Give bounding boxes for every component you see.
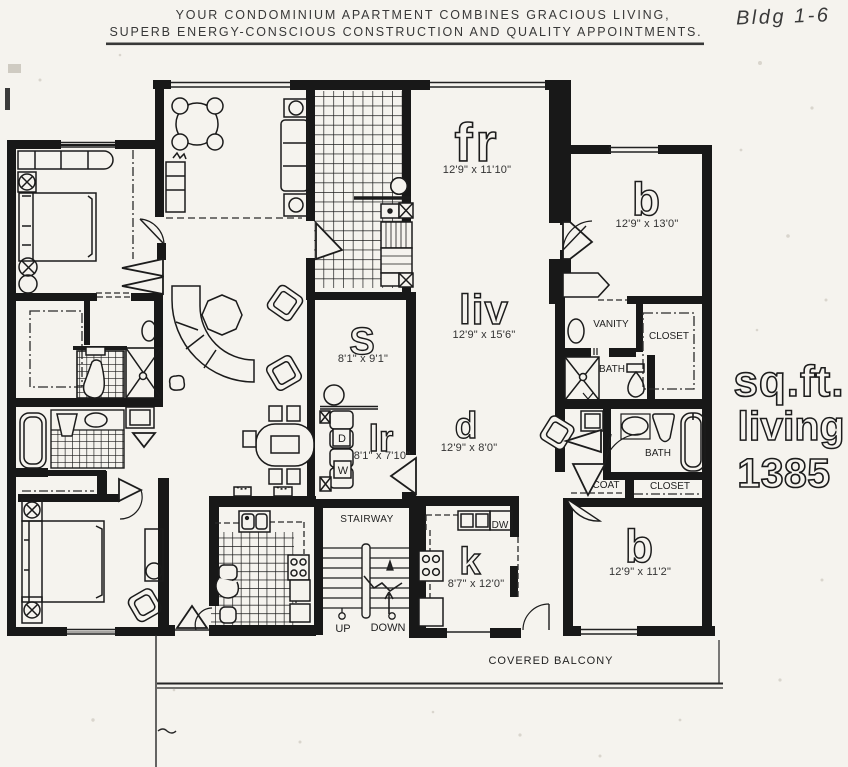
svg-text:CLOSET: CLOSET bbox=[649, 331, 689, 342]
svg-text:COVERED BALCONY: COVERED BALCONY bbox=[488, 655, 613, 667]
svg-text:liv: liv bbox=[459, 286, 509, 333]
svg-text:Bldg 1-6: Bldg 1-6 bbox=[736, 4, 831, 29]
svg-text:8'7" x 12'0": 8'7" x 12'0" bbox=[448, 578, 505, 590]
svg-text:DOWN: DOWN bbox=[371, 622, 406, 634]
svg-text:UP: UP bbox=[335, 623, 350, 635]
svg-text:12'9" x 11'10": 12'9" x 11'10" bbox=[443, 164, 511, 176]
svg-text:living: living bbox=[737, 403, 844, 449]
svg-text:COAT: COAT bbox=[592, 480, 619, 491]
svg-text:D: D bbox=[338, 433, 346, 445]
svg-text:8'1" x 7'10": 8'1" x 7'10" bbox=[354, 450, 411, 462]
svg-text:12'9" x 11'2": 12'9" x 11'2" bbox=[609, 566, 671, 578]
svg-text:sq.ft.: sq.ft. bbox=[733, 357, 844, 406]
svg-text:W: W bbox=[338, 465, 349, 477]
svg-text:b: b bbox=[625, 520, 653, 572]
svg-text:BATH: BATH bbox=[645, 448, 671, 459]
svg-text:VANITY: VANITY bbox=[593, 319, 629, 330]
svg-text:12'9" x 8'0": 12'9" x 8'0" bbox=[441, 442, 498, 454]
svg-text:YOUR CONDOMINIUM APARTMENT COM: YOUR CONDOMINIUM APARTMENT COMBINES GRAC… bbox=[176, 8, 671, 22]
svg-text:CLOSET: CLOSET bbox=[650, 481, 690, 492]
svg-text:12'9" x 13'0": 12'9" x 13'0" bbox=[616, 218, 679, 230]
svg-text:1385: 1385 bbox=[737, 450, 830, 496]
svg-text:12'9" x 15'6": 12'9" x 15'6" bbox=[453, 329, 516, 341]
svg-text:SUPERB ENERGY-CONSCIOUS CONSTR: SUPERB ENERGY-CONSCIOUS CONSTRUCTION AND… bbox=[110, 25, 703, 39]
svg-text:STAIRWAY: STAIRWAY bbox=[340, 514, 393, 525]
svg-text:8'1" x 9'1": 8'1" x 9'1" bbox=[338, 353, 388, 365]
svg-text:BATH: BATH bbox=[599, 364, 625, 375]
svg-text:k: k bbox=[459, 541, 481, 583]
svg-text:d: d bbox=[455, 405, 478, 446]
